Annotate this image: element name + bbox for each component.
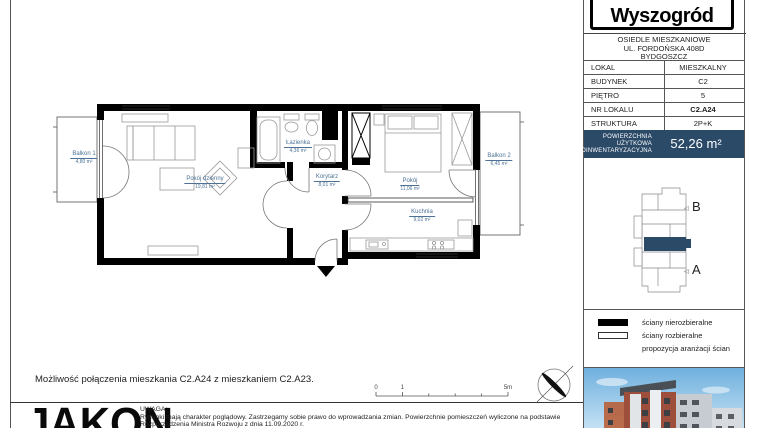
room-label-kuchnia: Kuchnia 9,02 m² — [409, 209, 435, 223]
row-label: BUDYNEK — [591, 75, 627, 88]
legend-label: propozycja aranżacji ścian — [642, 344, 730, 353]
row-label: NR LOKALU — [591, 103, 634, 116]
scale-label-5m: 5m — [504, 385, 512, 391]
room-name: Pokój — [400, 178, 419, 186]
entrance-arrow-icon — [317, 266, 335, 277]
room-area: 9,02 m² — [409, 217, 435, 223]
room-area: 19,81 m² — [184, 184, 225, 190]
legend-swatch-solid — [598, 319, 628, 326]
walls-solid — [97, 104, 480, 265]
area-banner-line: POINWENTARYZACYJNA — [572, 148, 652, 155]
table-row-budynek: BUDYNEK C2 — [584, 74, 744, 88]
room-label-lazienka: Łazienka 4,36 m² — [284, 140, 312, 154]
section-a-arrow-icon: ◁ — [684, 268, 689, 275]
brand-logo-text: Wyszogród — [611, 5, 714, 27]
room-area: 11,06 m² — [400, 186, 419, 192]
scale-label-1: 1 — [401, 385, 405, 391]
brand-logo-box: Wyszogród — [590, 0, 734, 30]
table-row-lokal: LOKAL MIESZKALNY — [584, 60, 744, 74]
room-area: 4,36 m² — [284, 148, 312, 154]
room-name: Łazienka — [284, 140, 312, 148]
floor-plan-drawing — [10, 90, 583, 380]
room-label-pokoj-dzienny: Pokój dzienny 19,81 m² — [184, 176, 225, 190]
room-name: Korytarz — [314, 174, 340, 182]
estate-address: OSIEDLE MIESZKANIOWE UL. FORDOŃSKA 408D … — [584, 36, 744, 62]
room-label-balkon-2: Balkon 2 6,45 m² — [485, 153, 512, 167]
row-value: C2.A24 — [664, 103, 742, 116]
building-render — [584, 368, 744, 428]
highlighted-unit-balcony — [686, 239, 691, 248]
scale-bar: 0 1 5m — [372, 380, 514, 402]
row-value: C2 — [664, 75, 742, 88]
room-name: Balkon 2 — [485, 153, 512, 161]
building-key-plan: ◁ B ◁ A — [584, 158, 744, 310]
legend-label: ściany nierozbieralne — [642, 318, 712, 327]
floor-plan-sheet: Balkon 1 4,80 m² Pokój dzienny 19,81 m² … — [0, 0, 760, 428]
area-banner: POWIERZCHNIA UŻYTKOWA POINWENTARYZACYJNA… — [584, 130, 744, 158]
section-a-label: A — [692, 262, 701, 277]
disclaimer-line: Rozporządzenia Ministra Rozwoju z dnia 1… — [140, 421, 570, 428]
scale-label-0: 0 — [374, 385, 378, 391]
section-b-arrow-icon: ◁ — [684, 205, 689, 212]
area-value: 52,26 m² — [658, 136, 734, 151]
table-row-pietro: PIĘTRO 5 — [584, 88, 744, 102]
legend-swatch-outline — [598, 332, 628, 339]
room-area: 6,45 m² — [485, 161, 512, 167]
room-name: Balkon 1 — [70, 151, 97, 159]
room-name: Pokój dzienny — [184, 176, 225, 184]
row-label: PIĘTRO — [591, 89, 619, 102]
room-label-pokoj: Pokój 11,06 m² — [400, 178, 419, 192]
disclaimer-line: Rysunki mają charakter poglądowy. Zastrz… — [140, 414, 570, 422]
room-name: Kuchnia — [409, 209, 435, 217]
legend: ściany nierozbieralne ściany rozbieralne… — [584, 310, 744, 368]
info-panel: Wyszogród OSIEDLE MIESZKANIOWE UL. FORDO… — [583, 0, 745, 428]
table-row-nr-lokalu: NR LOKALU C2.A24 — [584, 102, 744, 116]
north-arrow-icon — [528, 358, 580, 410]
building-photo — [584, 368, 744, 428]
legend-label: ściany rozbieralne — [642, 331, 702, 340]
room-area: 4,80 m² — [70, 159, 97, 165]
area-banner-line: UŻYTKOWA — [572, 141, 652, 148]
highlighted-unit — [644, 237, 686, 251]
disclaimer: UWAGA: Rysunki mają charakter poglądowy.… — [140, 406, 570, 428]
row-value: MIESZKALNY — [664, 61, 742, 74]
furniture — [122, 113, 473, 255]
wall-removable — [348, 198, 473, 202]
merge-note: Możliwość połączenia mieszkania C2.A24 z… — [35, 374, 314, 385]
row-label: LOKAL — [591, 61, 615, 74]
room-label-balkon-1: Balkon 1 4,80 m² — [70, 151, 97, 165]
room-area: 8,01 m² — [314, 182, 340, 188]
panel-divider — [584, 33, 746, 34]
room-label-korytarz: Korytarz 8,01 m² — [314, 174, 340, 188]
key-plan-drawing — [584, 158, 746, 309]
area-banner-label: POWIERZCHNIA UŻYTKOWA POINWENTARYZACYJNA — [572, 134, 652, 154]
disclaimer-title: UWAGA: — [140, 406, 570, 414]
section-b-label: B — [692, 199, 701, 214]
shaft-hatched — [352, 113, 370, 158]
table-row-struktura: STRUKTURA 2P+K — [584, 116, 744, 130]
row-value: 5 — [664, 89, 742, 102]
legend-swatch-none — [598, 345, 628, 352]
area-banner-line: POWIERZCHNIA — [572, 134, 652, 141]
unit-info-table: LOKAL MIESZKALNY BUDYNEK C2 PIĘTRO 5 NR … — [584, 60, 744, 130]
row-label: STRUKTURA — [591, 117, 637, 130]
row-value: 2P+K — [664, 117, 742, 130]
